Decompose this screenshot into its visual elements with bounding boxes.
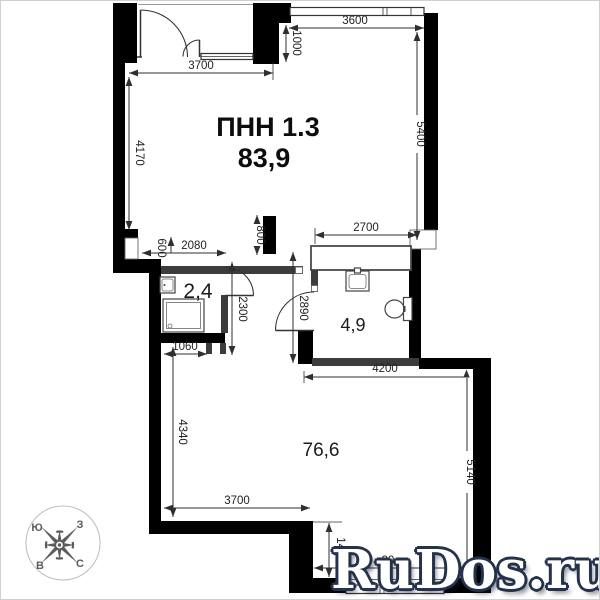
dim-4340: 4340 [176,419,188,445]
compass-hub-dot [58,543,61,546]
wall-left-lower [149,263,161,534]
compass-label-south: Ю [31,522,42,534]
compass-label-west: З [77,519,84,531]
hall-south-wall-cap [296,267,303,274]
toilet-bowl [385,300,404,318]
washbasin-small-tap [164,284,166,286]
dim-4170: 4170 [133,140,145,166]
compass-rose: Ю З В С [26,506,100,580]
dim-1060: 1060 [172,341,198,353]
compass-star-icon [41,527,78,564]
labels: ПНН 1.3 83,9 2,4 4,9 76,6 [183,112,365,461]
wall-left-upper [113,63,125,273]
wall-top-left [113,3,137,63]
dim-2300: 2300 [236,296,248,322]
washbasin-tap [355,268,361,273]
dim-3600: 3600 [342,15,368,27]
dimensions: 3700 4170 1000 3600 5400 2700 800 600 20… [129,15,476,577]
room-area-main: 76,6 [303,440,340,461]
bathroom-bottom-wall [312,358,419,366]
toilet-hinge [403,306,406,312]
niche-recess [125,238,138,259]
room-area-bathroom: 4,9 [340,315,365,335]
floorplan-page: 3700 4170 1000 3600 5400 2700 800 600 20… [0,0,600,600]
wall-junction-block [410,230,436,249]
watermark: RuDos.ru [331,544,600,597]
dim-2080: 2080 [181,240,207,252]
opening-stub-left [206,343,212,354]
dim-2700: 2700 [353,222,379,234]
dim-arrow-up [463,370,469,378]
opening-stub-right [220,343,226,354]
floorplan-drawing: 3700 4170 1000 3600 5400 2700 800 600 20… [1,1,600,600]
dim-600: 600 [155,238,167,257]
dim-4200: 4200 [372,363,398,375]
wall-top-middle-ext [278,3,291,23]
dim-2890: 2890 [297,295,309,321]
plan-title: ПНН 1.3 [216,112,319,142]
compass-label-north: С [76,558,84,570]
bathtub [163,299,204,332]
room-area-bathroom-small: 2,4 [183,280,213,303]
wall-below-bathroom-door [298,331,313,364]
entry-door-swing [141,10,188,57]
plan-total-area: 83,9 [238,143,291,173]
bathroom-left-wall-cap [312,286,318,292]
bathroom-left-wall [311,270,318,286]
dim-800: 800 [254,225,266,244]
wall-bottom-left [149,521,313,534]
wall-right-jog [419,358,491,369]
wall-bottom-step [289,534,313,593]
bathroom-small-right-wall [221,295,228,333]
bathroom-top-wall [311,246,411,270]
dim-1000: 1000 [290,30,302,56]
compass-label-east: В [36,560,44,572]
dim-5400: 5400 [414,121,426,147]
dim-3700-bottom: 3700 [224,495,250,507]
wall-niche-top [125,229,138,238]
dim-3700-top: 3700 [188,60,214,72]
wall-top-middle [253,3,279,64]
dim-5140: 5140 [464,459,476,485]
